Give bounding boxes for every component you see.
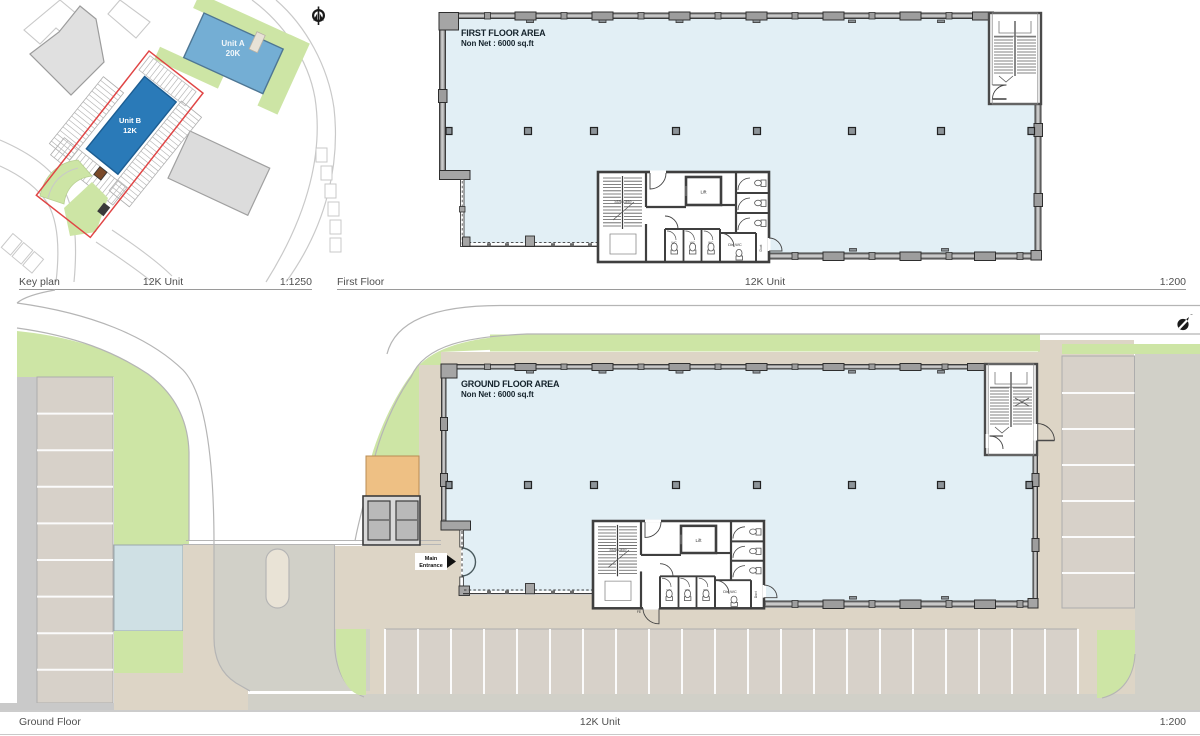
svg-text:Lift: Lift bbox=[700, 190, 707, 195]
svg-text:1:200: 1:200 bbox=[1160, 276, 1186, 288]
svg-text:Duct: Duct bbox=[759, 244, 763, 251]
svg-text:12K: 12K bbox=[123, 126, 137, 135]
svg-text:Non Net : 6000 sq.ft: Non Net : 6000 sq.ft bbox=[461, 390, 534, 399]
svg-text:20K: 20K bbox=[226, 49, 241, 58]
svg-text:First Floor: First Floor bbox=[337, 276, 385, 288]
svg-text:WC: WC bbox=[685, 588, 691, 592]
svg-text:Key plan: Key plan bbox=[19, 276, 60, 288]
svg-text:Main: Main bbox=[425, 556, 438, 562]
svg-text:Unit A: Unit A bbox=[221, 39, 244, 48]
svg-text:WC: WC bbox=[666, 588, 672, 592]
svg-text:Unit B: Unit B bbox=[119, 116, 142, 125]
svg-text:Non Net : 6000 sq.ft: Non Net : 6000 sq.ft bbox=[461, 39, 534, 48]
svg-text:Staircase: Staircase bbox=[609, 547, 627, 552]
svg-text:Staircase: Staircase bbox=[614, 199, 632, 204]
svg-text:Dis WC: Dis WC bbox=[728, 242, 742, 247]
svg-text:12K Unit: 12K Unit bbox=[143, 276, 183, 288]
svg-text:Duct: Duct bbox=[754, 591, 758, 598]
svg-text:WC: WC bbox=[671, 241, 677, 245]
svg-text:Ground Floor: Ground Floor bbox=[19, 716, 81, 728]
svg-text:GROUND FLOOR AREA: GROUND FLOOR AREA bbox=[461, 379, 560, 389]
svg-text:WC: WC bbox=[690, 241, 696, 245]
svg-text:WC: WC bbox=[708, 241, 714, 245]
svg-text:1:1250: 1:1250 bbox=[280, 276, 312, 288]
svg-text:12K Unit: 12K Unit bbox=[580, 716, 620, 728]
svg-text:WC: WC bbox=[703, 588, 709, 592]
svg-text:Lift: Lift bbox=[696, 538, 703, 543]
svg-text:12K Unit: 12K Unit bbox=[745, 276, 785, 288]
svg-text:1:200: 1:200 bbox=[1160, 716, 1186, 728]
svg-text:Entrance: Entrance bbox=[419, 563, 443, 569]
svg-text:Dis WC: Dis WC bbox=[723, 589, 737, 594]
svg-text:FIRST FLOOR AREA: FIRST FLOOR AREA bbox=[461, 28, 546, 38]
